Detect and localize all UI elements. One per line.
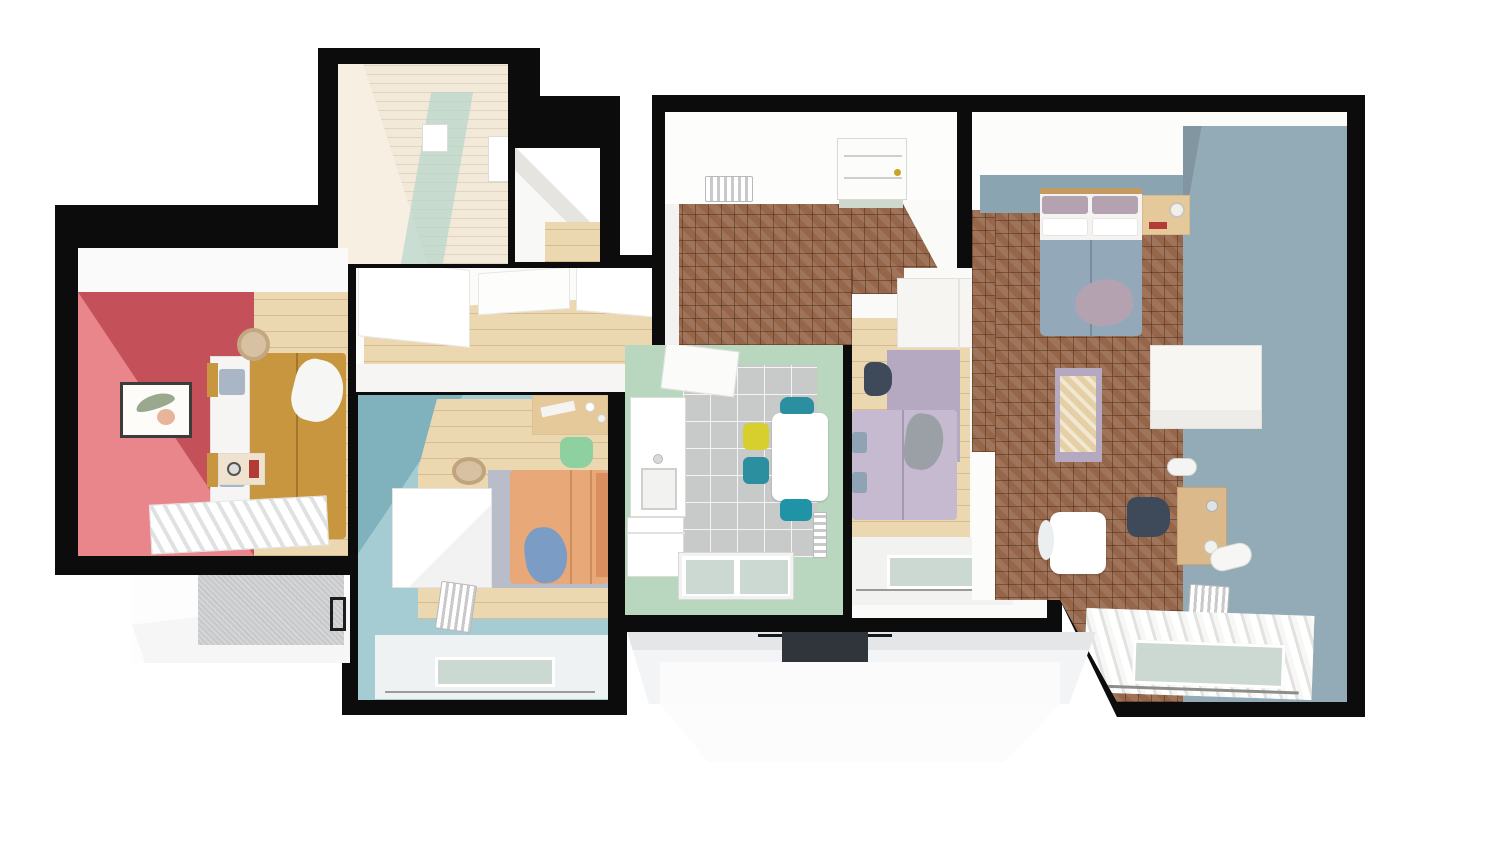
door-panel-line-2	[844, 177, 902, 179]
teal-chair-green	[560, 437, 593, 468]
room-hallway	[356, 268, 652, 392]
wall-art-blob	[157, 409, 175, 425]
chair-teal-top	[780, 397, 814, 414]
teal-desk	[532, 395, 608, 435]
desk-mug	[1206, 500, 1218, 512]
teal-window-glass	[435, 657, 555, 687]
hallway-wardrobe-right	[576, 268, 652, 317]
bench-wood-art	[1060, 376, 1096, 452]
kitchen-window-pane-1	[686, 560, 734, 594]
balcony-left-railing	[330, 597, 346, 631]
kids-wardrobe-seam	[958, 279, 960, 349]
nightstand-lamp	[1169, 202, 1185, 218]
teal-basket	[452, 457, 486, 485]
nightstand-book-red	[1149, 222, 1167, 229]
master-pillow-white-1	[1042, 218, 1088, 236]
door-panel-line-1	[844, 155, 902, 157]
kitchen-counter	[630, 397, 686, 517]
nightstand	[218, 453, 265, 485]
kids-pillow-2	[852, 472, 867, 493]
master-paper-roll	[1167, 458, 1197, 476]
washing-machine	[627, 517, 684, 577]
master-office-chair	[1127, 497, 1170, 537]
teal-desk-plant	[597, 414, 606, 423]
balcony-center-floor-extension	[660, 704, 1060, 762]
window-blinds	[149, 495, 329, 554]
room-closet-nook	[515, 148, 600, 262]
chair-teal-mid	[743, 457, 769, 484]
door-knob-gold	[894, 169, 901, 176]
master-pillow-mauve-1	[1042, 196, 1088, 214]
chair-yellow	[743, 423, 769, 450]
kids-desk-chair	[864, 362, 892, 396]
kids-window-glass	[887, 555, 983, 589]
wall-cabinet	[422, 124, 448, 152]
kitchen-window	[679, 553, 793, 599]
balcony-center-floor-light	[660, 662, 1060, 704]
pillow-ochre-1	[207, 363, 218, 397]
kitchen-radiator	[813, 512, 827, 558]
teal-window-curtains	[375, 635, 608, 699]
floor-plan	[0, 0, 1500, 844]
red-room-ceiling-band	[78, 248, 348, 292]
washer-seam	[628, 532, 685, 534]
balcony-left	[132, 575, 350, 663]
room-kitchen	[625, 345, 843, 615]
master-window-curtains	[1084, 608, 1315, 700]
master-pillow-white-2	[1092, 218, 1138, 236]
room-bedroom-teal	[358, 395, 608, 700]
chair-teal-bottom	[780, 499, 812, 521]
entry-left-wall	[665, 204, 679, 345]
master-bench-rug	[1055, 368, 1102, 462]
room-bathroom-top-left	[338, 64, 508, 264]
balcony-ac-grille	[782, 632, 868, 662]
balcony-left-grey-wall	[198, 575, 344, 645]
nook-floor	[545, 222, 600, 262]
kitchen-faucet	[653, 454, 663, 464]
pillow-blue-1	[219, 369, 245, 395]
nightstand-book	[249, 460, 259, 478]
sink-cabinet	[488, 136, 508, 182]
room-bedroom-red	[78, 248, 348, 556]
ac-grille-bar-left	[758, 634, 782, 637]
teal-curtain-rod	[385, 691, 595, 693]
entry-radiator-grille	[705, 176, 753, 202]
master-window-glass	[1132, 640, 1285, 689]
master-wardrobe	[1150, 345, 1262, 429]
kids-pillow-1	[852, 432, 867, 453]
kitchen-open-door	[660, 345, 739, 397]
entry-doormat	[839, 200, 903, 208]
teal-desk-laptop	[540, 401, 575, 418]
hallway-wardrobe-left	[358, 268, 470, 348]
kitchen-window-pane-2	[740, 560, 788, 594]
side-table-bowl	[1038, 520, 1054, 560]
master-pillow-mauve-2	[1092, 196, 1138, 214]
teal-bed-pillow-strip	[596, 473, 608, 577]
master-parquet-sliver	[972, 210, 995, 452]
ac-grille-bar-right	[868, 634, 892, 637]
hallway-lower-wall	[356, 364, 652, 392]
laundry-basket	[237, 328, 270, 361]
teal-radiator	[435, 581, 477, 634]
teal-wardrobe	[392, 488, 492, 588]
dining-table	[772, 413, 828, 501]
teal-desk-cup	[585, 402, 595, 412]
wall-art-frame	[120, 382, 192, 438]
pillow-ochre-2	[207, 453, 218, 487]
master-side-table	[1050, 512, 1106, 574]
kitchen-sink	[641, 468, 677, 510]
master-nightstand	[1142, 195, 1190, 235]
hallway-shelf-center	[478, 268, 570, 315]
entrance-door	[837, 138, 907, 200]
nightstand-clock	[227, 462, 241, 476]
master-bed-pillow-zone	[1040, 194, 1142, 240]
